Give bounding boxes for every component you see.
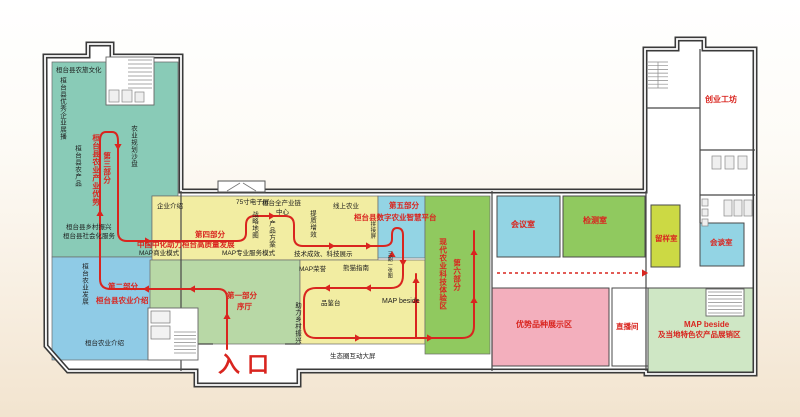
label-map-beside-room-line1: MAP beside [684, 320, 729, 329]
label-social-services: 桓台县社会化服务 [63, 233, 115, 240]
label-agri-products: 桓台县农产品 [73, 145, 80, 187]
entrance-label: 入口 [218, 352, 276, 377]
label-map-beside-room-line2: 及当地特色农产品展销区 [658, 331, 741, 340]
label-one-map: 三期一张图 [386, 251, 392, 279]
label-industry-chain: 桓台全产业链 [262, 200, 301, 207]
label-panda-guide: 熊猫指南 [343, 265, 369, 272]
label-advantage-varieties: 优势品种展示区 [516, 320, 572, 329]
top-door-vestibule [218, 181, 265, 192]
label-part2-name: 桓台县农业介绍 [96, 297, 149, 306]
label-map-honor: MAP荣誉 [299, 266, 326, 273]
label-testing-room: 检测室 [583, 216, 607, 225]
label-part3-name: 桓台县农业产业优势 [91, 134, 100, 206]
label-rural-revitalization: 桓台县乡村振兴 [66, 224, 112, 231]
room-testing [563, 196, 645, 257]
label-part5-num: 第五部分 [389, 202, 419, 211]
label-industry-chain-center: 中心 [276, 209, 289, 216]
label-part5-name: 桓台县数字农业智慧平台 [354, 214, 437, 223]
label-sandtable: 农业规划沙盘 [129, 125, 136, 167]
label-help-rural: 助力乡村振兴 [293, 302, 300, 344]
label-quality-efficiency: 提质增效 [308, 210, 315, 238]
label-tech-display: 技术成效、科技展示 [294, 251, 353, 258]
label-talk-room: 会谈室 [710, 239, 733, 248]
label-part6-num: 第六部分 [452, 259, 461, 291]
label-part4-name: 中国中化助力桓台高质量发展 [137, 241, 235, 250]
label-product-solution: 产品方案 [267, 220, 274, 248]
label-splice-screen: 拼接屏 [369, 221, 375, 239]
label-part1-name: 序厅 [237, 303, 252, 312]
stairs-bottom [174, 332, 196, 353]
label-part3-num: 第三部分 [102, 152, 111, 184]
label-sample-room: 留样室 [655, 235, 678, 244]
label-map-beside-area: MAP beside [382, 298, 420, 306]
wc-fixtures-topleft [109, 90, 144, 102]
label-part4-num: 第四部分 [195, 231, 225, 240]
label-live-room: 直播间 [616, 323, 639, 332]
label-part6-name: 现代农业科技体验区 [438, 238, 447, 310]
label-agri-development: 桓台农业发展 [80, 263, 87, 305]
label-part1-num: 第一部分 [227, 292, 257, 301]
label-online-agriculture: 线上农业 [333, 203, 359, 210]
label-agritourism: 桓台县农旅文化 [56, 67, 102, 74]
label-map-professional-service: MAP专业服务模式 [222, 250, 275, 257]
label-startup-workshop: 创业工坊 [705, 95, 737, 104]
label-eco-screen: 生态圈互动大屏 [330, 353, 376, 360]
label-part2-num: 第二部分 [108, 283, 138, 292]
stairs-rightmid [708, 292, 742, 313]
label-enterprise-intro: 企业介绍 [157, 203, 183, 210]
label-meeting-room: 会议室 [511, 220, 535, 229]
label-tasting-table: 品鉴台 [321, 300, 341, 307]
floor-plan: 桓台县农旅文化 桓台县优秀企业展播 农业规划沙盘 桓台县农产品 桓台县乡村振兴 … [0, 0, 800, 417]
label-agri-intro: 桓台农业介绍 [85, 340, 124, 347]
label-map-business-model: MAP商业模式 [139, 250, 179, 257]
label-strategy-map: 战略地图 [250, 211, 257, 239]
label-excellent-enterprises: 桓台县优秀企业展播 [58, 77, 65, 140]
